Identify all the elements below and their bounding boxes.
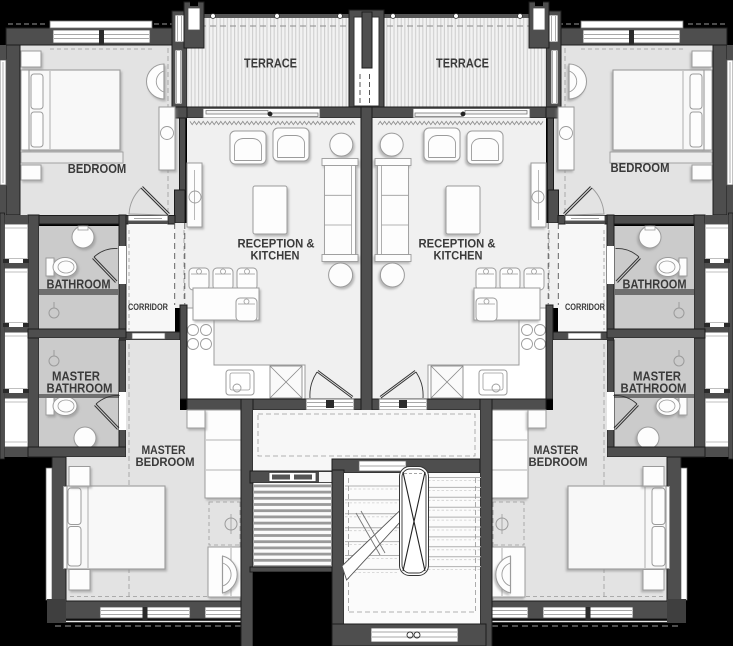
svg-text:KITCHEN: KITCHEN — [251, 251, 300, 263]
svg-text:BEDROOM: BEDROOM — [68, 161, 127, 176]
svg-text:RECEPTION &: RECEPTION & — [238, 239, 315, 251]
svg-text:KITCHEN: KITCHEN — [434, 251, 483, 263]
svg-text:MASTER: MASTER — [142, 445, 187, 457]
svg-text:BEDROOM: BEDROOM — [136, 457, 195, 469]
svg-text:BEDROOM: BEDROOM — [529, 457, 588, 469]
svg-text:BATHROOM: BATHROOM — [47, 277, 111, 292]
svg-text:TERRACE: TERRACE — [244, 57, 297, 71]
svg-text:RECEPTION &: RECEPTION & — [419, 239, 496, 251]
svg-text:BATHROOM: BATHROOM — [621, 382, 687, 396]
svg-text:TERRACE: TERRACE — [436, 57, 489, 71]
svg-text:BATHROOM: BATHROOM — [623, 277, 687, 292]
svg-text:BEDROOM: BEDROOM — [611, 160, 670, 175]
svg-text:MASTER: MASTER — [534, 445, 580, 457]
svg-text:BATHROOM: BATHROOM — [47, 382, 113, 396]
svg-text:CORRIDOR: CORRIDOR — [128, 302, 168, 313]
svg-text:CORRIDOR: CORRIDOR — [565, 302, 605, 313]
